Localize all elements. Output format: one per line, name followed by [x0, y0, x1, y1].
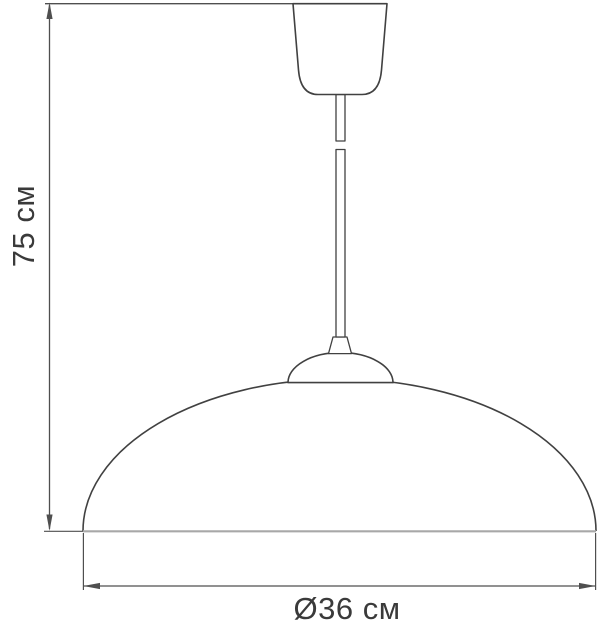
height-dimension-label: 75 см [6, 185, 41, 267]
cord-upper-segment [336, 95, 345, 142]
lampshade-dome [83, 379, 596, 531]
diameter-dimension-arrow-left [83, 583, 100, 589]
height-dimension-arrow-up [46, 3, 52, 20]
cord-lower-segment [336, 150, 345, 338]
diameter-dimension-arrow-right [579, 583, 596, 589]
cord-connector [329, 337, 352, 354]
diameter-dimension-label: Ø36 см [293, 591, 400, 626]
lamp-dimension-drawing: 75 см Ø36 см [0, 0, 600, 630]
lampshade-cap [288, 353, 393, 383]
ceiling-canopy [293, 4, 387, 95]
pendant-lamp-diagram: 75 см Ø36 см [0, 0, 600, 630]
height-dimension-arrow-down [46, 515, 52, 532]
